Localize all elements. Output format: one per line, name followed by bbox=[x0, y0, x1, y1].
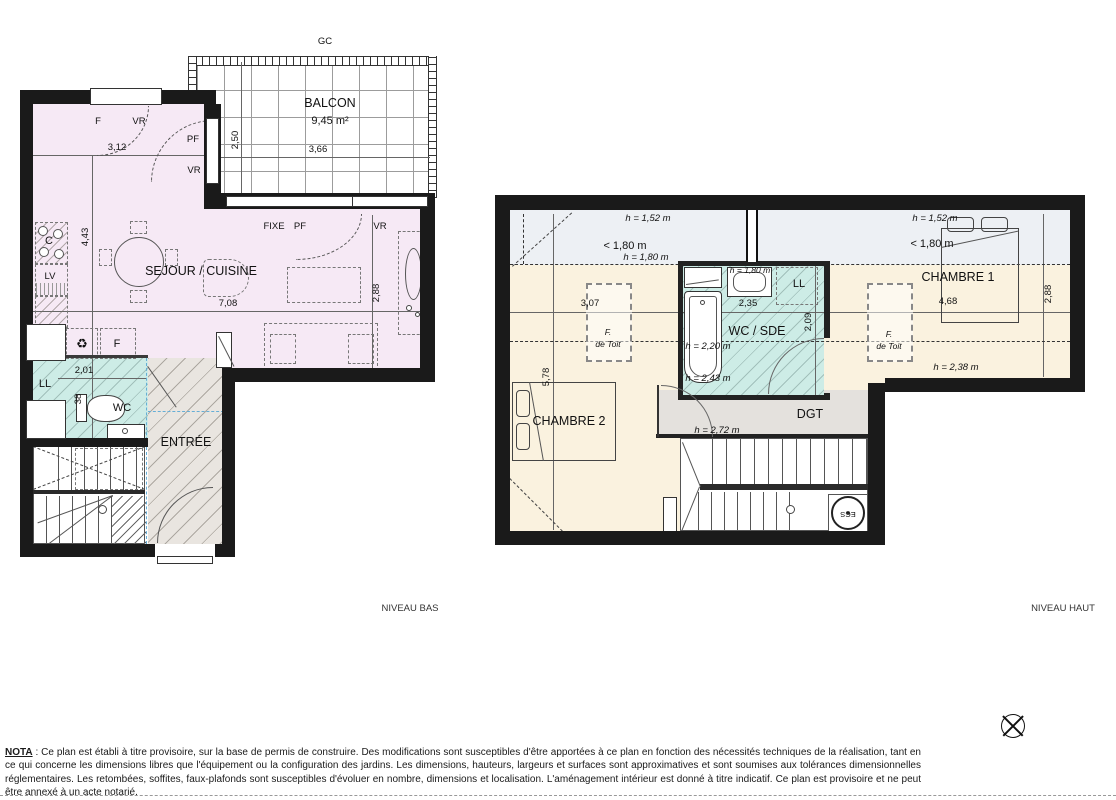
window-tag: F bbox=[95, 117, 101, 127]
dim-line bbox=[553, 214, 554, 530]
plan-title-haut: NIVEAU HAUT bbox=[1031, 604, 1095, 614]
height-label: h = 1,80 m bbox=[623, 253, 668, 263]
dim-line bbox=[33, 311, 420, 312]
dim-label: 2,01 bbox=[75, 366, 94, 376]
dim-label: 3,66 bbox=[309, 145, 328, 155]
dim-label: 7,08 bbox=[219, 299, 238, 309]
appliance-tag: LL bbox=[39, 379, 51, 389]
duct bbox=[746, 210, 758, 262]
vanity bbox=[684, 267, 722, 288]
roof-window bbox=[586, 283, 632, 362]
stair-treads bbox=[712, 438, 868, 484]
dim-label: 4,43 bbox=[81, 228, 91, 247]
wall bbox=[885, 378, 1085, 392]
wall bbox=[868, 383, 885, 545]
window-tag: FIXE bbox=[263, 222, 284, 232]
appliance-tag: F bbox=[114, 339, 121, 349]
window-fixe-pf bbox=[226, 196, 354, 207]
sofa-cushion bbox=[348, 334, 374, 364]
chair bbox=[99, 249, 112, 266]
wall bbox=[678, 395, 830, 400]
burner-icon bbox=[39, 247, 49, 257]
stair-handrail bbox=[700, 484, 868, 490]
dining-table bbox=[114, 237, 164, 287]
chambre2-door-leaf bbox=[657, 385, 659, 437]
wall bbox=[824, 393, 830, 400]
stair-direction-dot bbox=[786, 505, 795, 514]
wall bbox=[824, 261, 830, 338]
plan-title-bas: NIVEAU BAS bbox=[381, 604, 438, 614]
room-label-dgt: DGT bbox=[797, 409, 823, 419]
dim-label: 2,50 bbox=[231, 131, 241, 150]
dim-label: 3,12 bbox=[108, 143, 127, 153]
stair-landing-edge bbox=[33, 490, 145, 494]
dim-label: 2,09 bbox=[804, 313, 814, 332]
room-label-wc: WC bbox=[113, 403, 131, 413]
dim-line bbox=[241, 62, 242, 198]
room-label-sejour: SEJOUR / CUISINE bbox=[145, 266, 257, 276]
dim-line bbox=[58, 378, 146, 379]
dim-label: 5,78 bbox=[542, 368, 552, 387]
wall bbox=[678, 261, 683, 400]
wall bbox=[495, 531, 885, 545]
nota-text: : Ce plan est établi à titre provisoire,… bbox=[5, 747, 921, 798]
water-heater-label: ECS bbox=[840, 509, 855, 519]
layout-guide bbox=[146, 358, 147, 544]
roof-window-label: de Toit bbox=[876, 341, 901, 351]
room-label-wc-sde: WC / SDE bbox=[729, 326, 786, 336]
burner-icon bbox=[53, 229, 63, 239]
niche bbox=[663, 497, 677, 533]
nota-label: NOTA bbox=[5, 747, 33, 758]
roof-window-label: F. bbox=[886, 329, 892, 339]
window bbox=[26, 400, 66, 439]
height-label: h = 2,20 m bbox=[685, 342, 730, 352]
chair bbox=[130, 221, 147, 234]
plant-dot bbox=[406, 305, 412, 311]
window bbox=[26, 324, 66, 361]
pillow bbox=[516, 390, 530, 417]
coffee-table bbox=[287, 267, 361, 303]
window-tag: VR bbox=[132, 117, 145, 127]
washbasin-bowl bbox=[733, 272, 766, 292]
wall bbox=[420, 203, 435, 382]
dim-label: 38 bbox=[74, 394, 84, 405]
window-tag: VR bbox=[373, 222, 386, 232]
pillow bbox=[981, 217, 1008, 232]
layout-guide bbox=[148, 411, 224, 412]
height-label: h = 2,72 m bbox=[694, 426, 739, 436]
floor-plan-sheet: GC BALCON 9,45 m² 2,50 3,66 F VR 3,12 PF… bbox=[0, 0, 1116, 800]
stair-treads bbox=[698, 492, 790, 531]
height-label: < 1,80 m bbox=[603, 241, 646, 251]
wall bbox=[495, 195, 1085, 210]
bathtub-inner bbox=[689, 296, 717, 377]
burner-icon bbox=[54, 249, 64, 259]
balcony-railing-right bbox=[428, 56, 437, 198]
bathtub-tap bbox=[700, 300, 705, 305]
window-tag: PF bbox=[294, 222, 306, 232]
height-label: h = 2,43 m bbox=[685, 374, 730, 384]
height-label: h = 1,80 m bbox=[730, 265, 770, 275]
balcony-door bbox=[206, 118, 219, 184]
basin-drain bbox=[122, 428, 128, 434]
cut-line bbox=[0, 795, 1116, 796]
dim-label: 4,68 bbox=[939, 297, 958, 307]
wall bbox=[222, 368, 435, 382]
window bbox=[90, 88, 162, 105]
recycle-icon: ♻ bbox=[76, 339, 88, 349]
nota-paragraph: NOTA : Ce plan est établi à titre provis… bbox=[5, 746, 921, 800]
pillow bbox=[516, 423, 530, 450]
dim-label: 2,88 bbox=[1044, 285, 1054, 304]
room-label-balcon: BALCON bbox=[304, 98, 355, 108]
height-label: < 1,80 m bbox=[910, 239, 953, 249]
window-vr bbox=[352, 196, 428, 207]
window-tag: VR bbox=[187, 166, 200, 176]
roof-window-label: de Toit bbox=[595, 339, 620, 349]
wall bbox=[222, 382, 235, 557]
height-label: h = 1,52 m bbox=[912, 214, 957, 224]
balcony-railing-top bbox=[188, 56, 435, 66]
appliance-tag: LV bbox=[45, 272, 56, 282]
height-label: h = 1,52 m bbox=[625, 214, 670, 224]
room-label-chambre1: CHAMBRE 1 bbox=[922, 272, 995, 282]
stair-first-steps bbox=[111, 496, 146, 544]
dim-label: 3,07 bbox=[581, 299, 600, 309]
wall bbox=[26, 438, 148, 447]
appliance-tag: C bbox=[45, 236, 53, 246]
wall bbox=[1070, 195, 1085, 392]
balcon-area: 9,45 m² bbox=[311, 116, 348, 126]
dim-label: 2,35 bbox=[739, 299, 758, 309]
entry-door-slab bbox=[157, 556, 213, 564]
dim-line bbox=[198, 157, 430, 158]
dim-label: 2,88 bbox=[372, 284, 382, 303]
room-label-entree: ENTRÉE bbox=[161, 437, 212, 447]
chair bbox=[130, 290, 147, 303]
window-tag: PF bbox=[187, 135, 199, 145]
height-label: h = 2,38 m bbox=[933, 363, 978, 373]
roof-window-label: F. bbox=[605, 327, 611, 337]
appliance-tag: LL bbox=[793, 279, 805, 289]
wall bbox=[495, 195, 510, 545]
railing-label: GC bbox=[318, 37, 332, 47]
room-label-chambre2: CHAMBRE 2 bbox=[533, 416, 606, 426]
stair-direction-dot bbox=[98, 505, 107, 514]
sofa-cushion bbox=[270, 334, 296, 364]
